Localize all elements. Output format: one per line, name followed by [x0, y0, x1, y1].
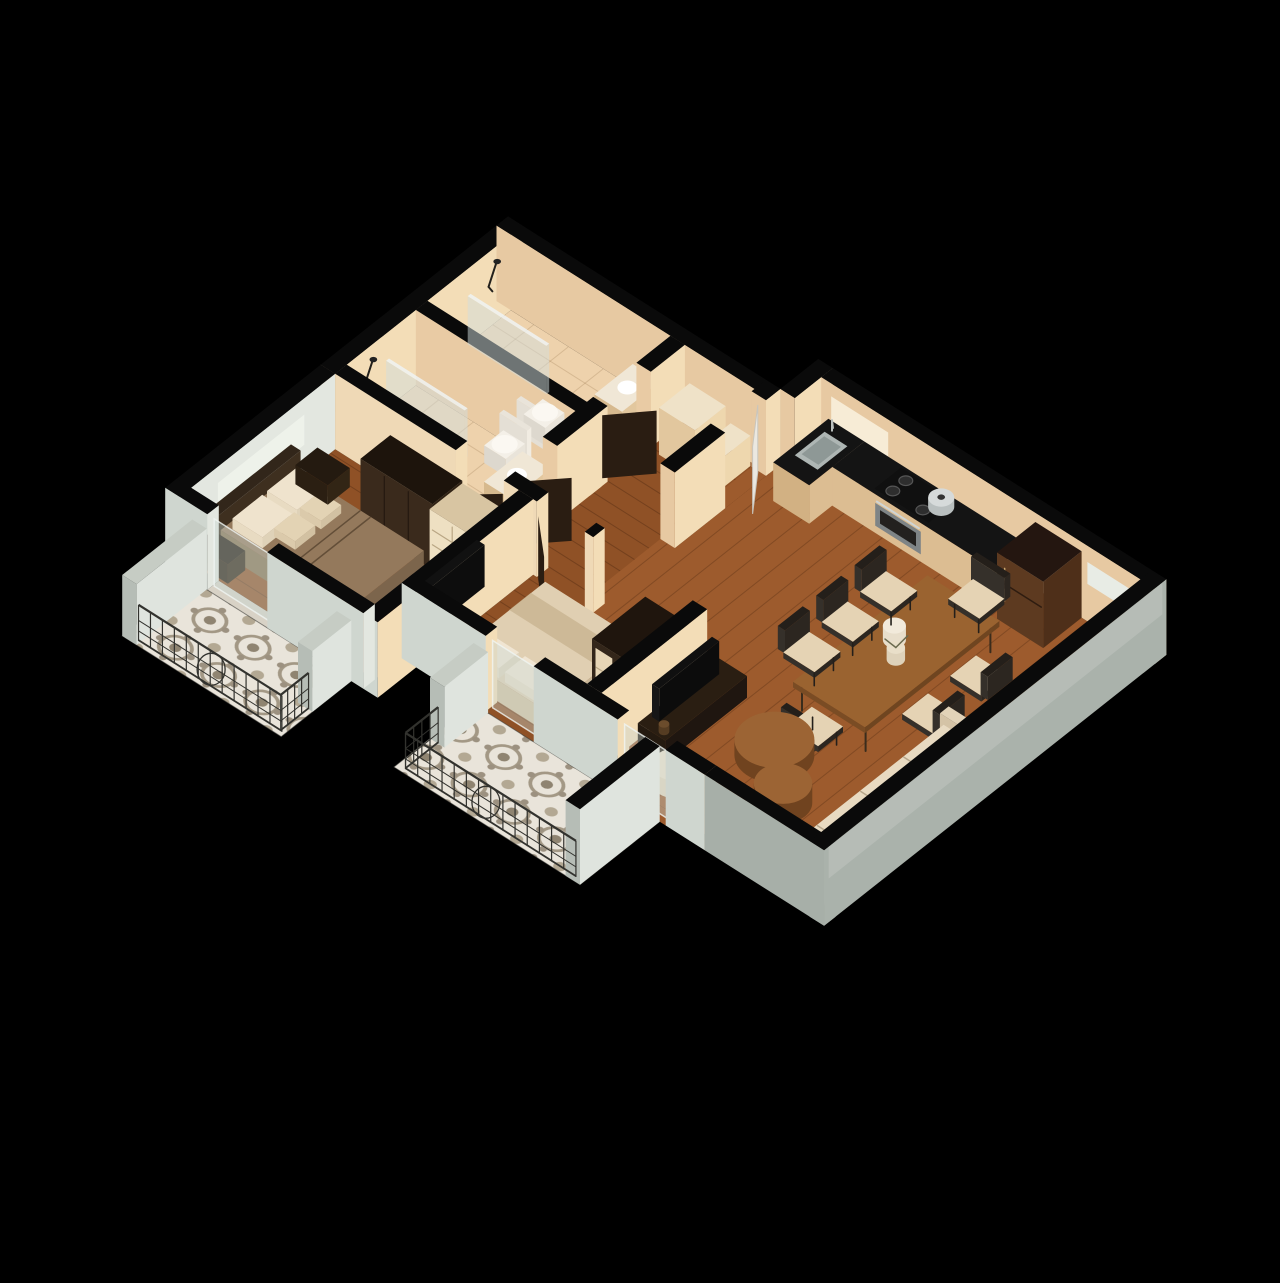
shower-head [370, 357, 378, 362]
stove-burner [886, 486, 900, 496]
bedroom-wall-face-u [593, 528, 605, 613]
shower-head [493, 259, 501, 264]
pot-lid-knob [937, 494, 945, 499]
dining-chair-back-face-v [981, 672, 988, 700]
toilet-seat [492, 435, 518, 453]
balcony-parapet-face-v [566, 800, 580, 885]
console-decor-top [659, 720, 670, 728]
floor-plan-canvas [0, 0, 1280, 1283]
dining-chair-back-face-v [855, 565, 862, 593]
entry-wall-face-v [660, 463, 674, 548]
bedroom-wall [585, 523, 605, 613]
vanity-basin [617, 380, 637, 394]
dining-chair-back-face-v [778, 626, 785, 654]
bedroom-wall-face-v [585, 532, 593, 613]
bathroom-door-leaf [602, 411, 656, 479]
coffee-table-top [734, 712, 814, 768]
stove-burner [916, 505, 930, 515]
dining-chair-back-face-u [1005, 574, 1011, 602]
shower-glass-partition-face-u [546, 344, 549, 395]
right-exterior-wall-face-v [810, 841, 824, 926]
toilet-seat [532, 403, 558, 421]
table-vase-top [883, 617, 906, 633]
stove-burner [899, 476, 913, 486]
master-balcony-wall-face-u [363, 604, 375, 689]
kitchen-faucet [832, 420, 833, 428]
balcony-parapet-face-v [122, 575, 136, 645]
dining-chair-back-face-v [816, 596, 823, 624]
living-tv-face-v [652, 684, 659, 721]
floor-plan-render [0, 0, 1280, 1283]
